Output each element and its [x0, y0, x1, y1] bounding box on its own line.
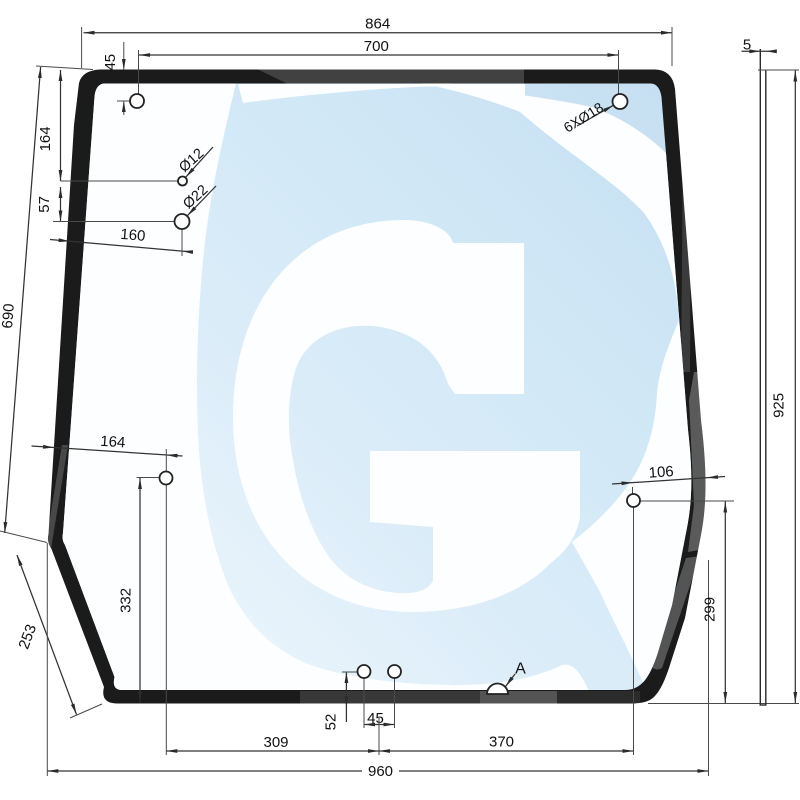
svg-text:52: 52 — [323, 714, 340, 731]
svg-text:925: 925 — [771, 393, 788, 418]
svg-text:45: 45 — [367, 710, 384, 727]
svg-text:864: 864 — [365, 15, 390, 32]
svg-text:164: 164 — [100, 433, 126, 452]
svg-text:A: A — [515, 660, 526, 677]
svg-text:332: 332 — [118, 588, 135, 613]
svg-text:690: 690 — [0, 303, 18, 329]
svg-text:309: 309 — [263, 734, 288, 751]
svg-text:960: 960 — [368, 763, 393, 780]
svg-text:160: 160 — [120, 226, 146, 245]
svg-text:700: 700 — [364, 38, 389, 55]
svg-text:45: 45 — [102, 54, 119, 71]
svg-text:299: 299 — [702, 597, 719, 622]
svg-text:164: 164 — [37, 126, 54, 151]
svg-text:57: 57 — [36, 196, 53, 213]
svg-text:370: 370 — [489, 733, 514, 750]
svg-text:106: 106 — [648, 463, 674, 482]
svg-text:5: 5 — [743, 36, 751, 53]
